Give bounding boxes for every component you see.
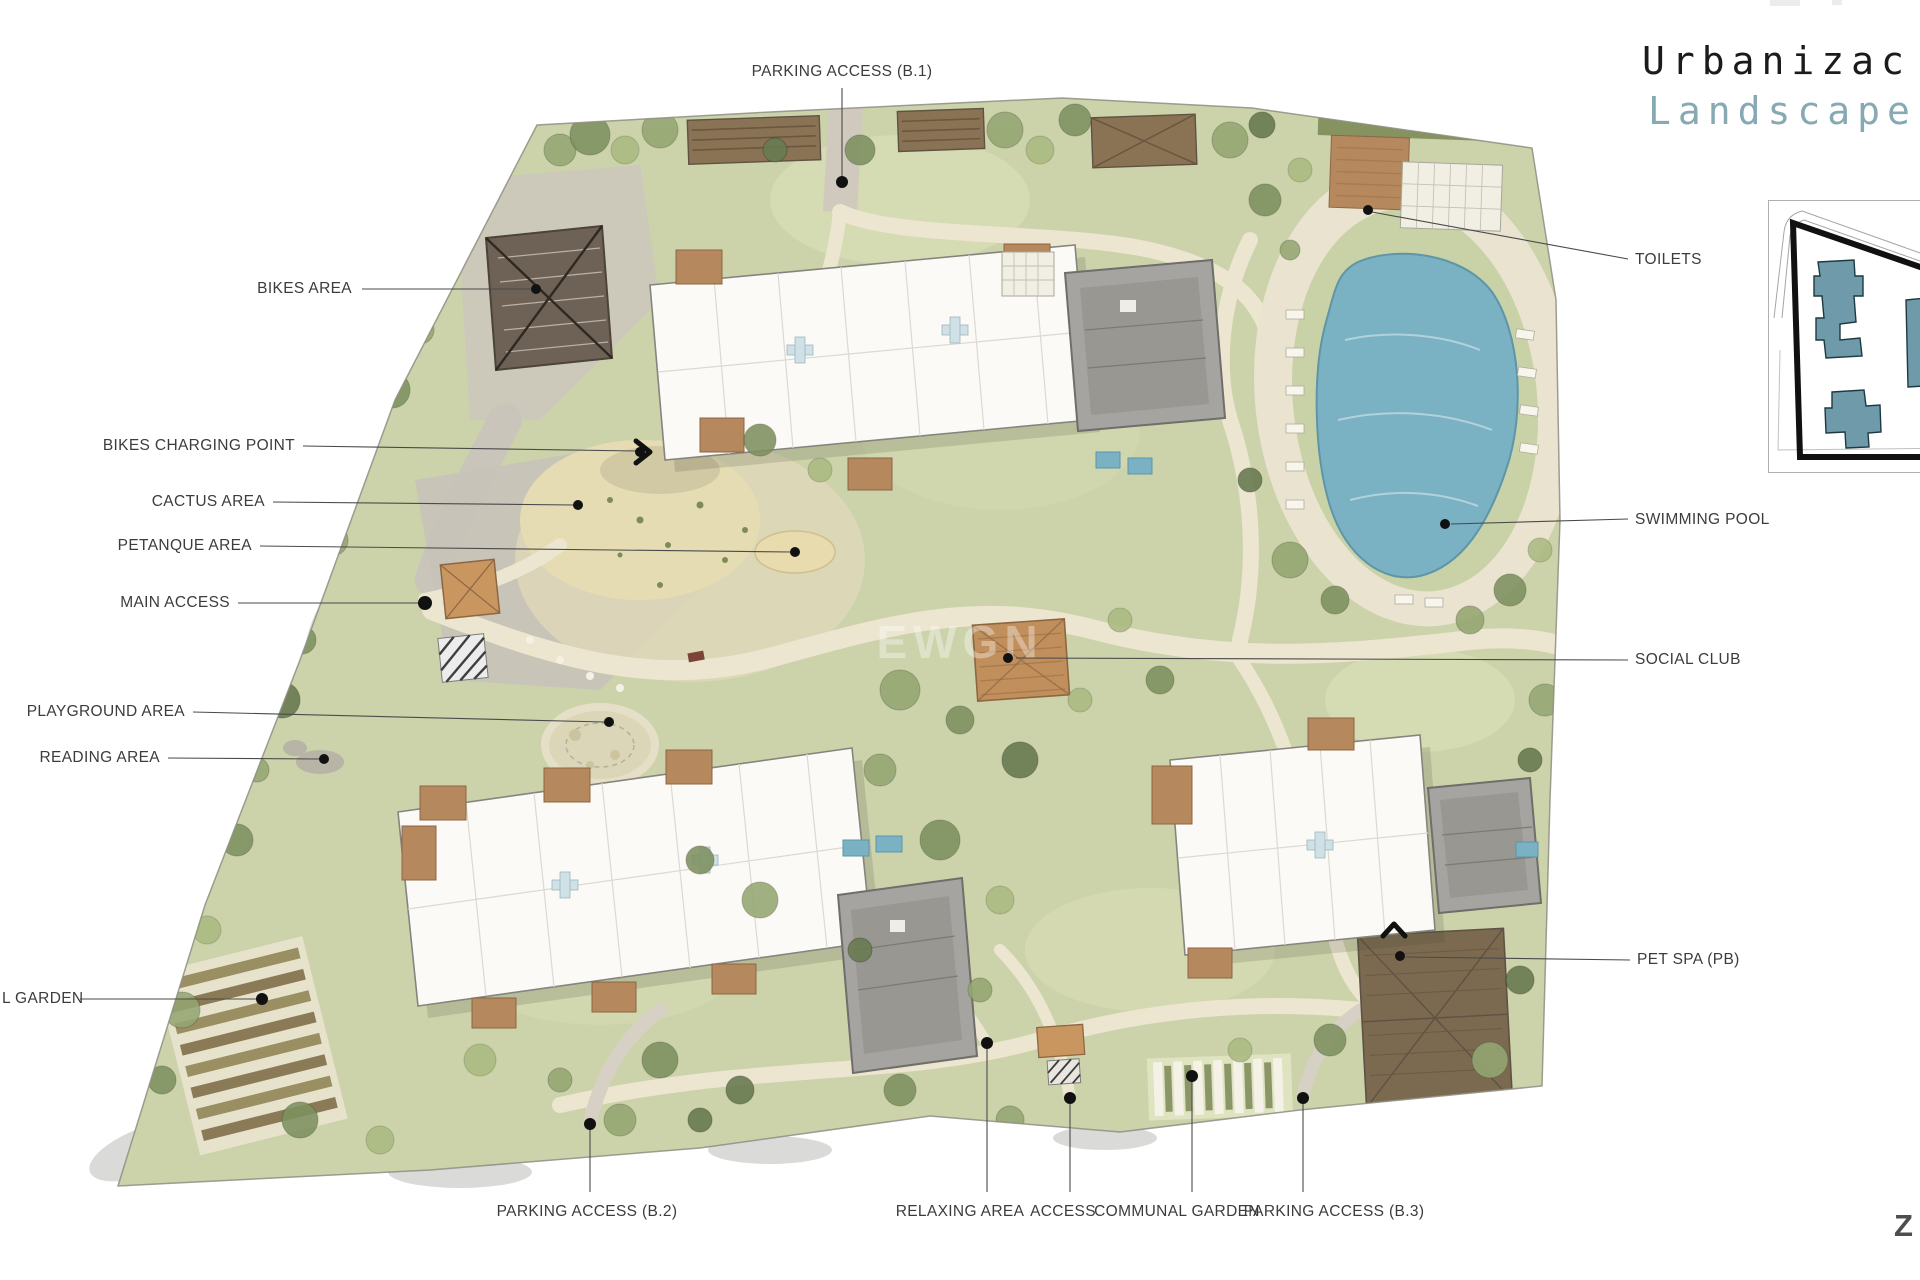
label-bikes-area: BIKES AREA (257, 280, 352, 298)
label-social-club: SOCIAL CLUB (1635, 651, 1741, 669)
parking-slats-right (1147, 1054, 1293, 1121)
label-cactus-area: CACTUS AREA (152, 493, 265, 511)
sheet-title-line2: Landscape (1648, 92, 1917, 130)
label-petanque-area: PETANQUE AREA (118, 537, 252, 555)
cropped-logo-fragment (1770, 0, 1800, 6)
site-plan-illustration: EWGN (0, 0, 1920, 1280)
label-communal-garden: COMMUNAL GARDEN (1094, 1203, 1260, 1221)
label-parking-access-b2: PARKING ACCESS (B.2) (497, 1203, 678, 1221)
cropped-logo-fragment-2 (1832, 0, 1842, 5)
label-playground-area: PLAYGROUND AREA (27, 703, 185, 721)
key-map (1768, 200, 1920, 473)
label-reading-area: READING AREA (40, 749, 160, 767)
landscape-masterplan-sheet: EWGN (0, 0, 1920, 1280)
sheet-title-line1: Urbanizac (1642, 42, 1911, 80)
label-swimming-pool: SWIMMING POOL (1635, 511, 1770, 529)
corner-logo-mark: Z (1894, 1208, 1914, 1244)
label-access: ACCESS (1030, 1203, 1096, 1221)
label-parking-access-b3: PARKING ACCESS (B.3) (1244, 1203, 1425, 1221)
label-communal-garden-left: L GARDEN (2, 990, 83, 1008)
label-relaxing-area: RELAXING AREA (896, 1203, 1025, 1221)
label-parking-access-b1: PARKING ACCESS (B.1) (752, 63, 933, 81)
label-bikes-charging-point: BIKES CHARGING POINT (103, 437, 295, 455)
label-main-access: MAIN ACCESS (120, 594, 230, 612)
bikes-area-structure (486, 226, 612, 370)
watermark-text: EWGN (876, 616, 1043, 668)
label-pet-spa: PET SPA (PB) (1637, 951, 1740, 969)
label-toilets: TOILETS (1635, 251, 1702, 269)
pet-spa-structure (1358, 928, 1513, 1107)
